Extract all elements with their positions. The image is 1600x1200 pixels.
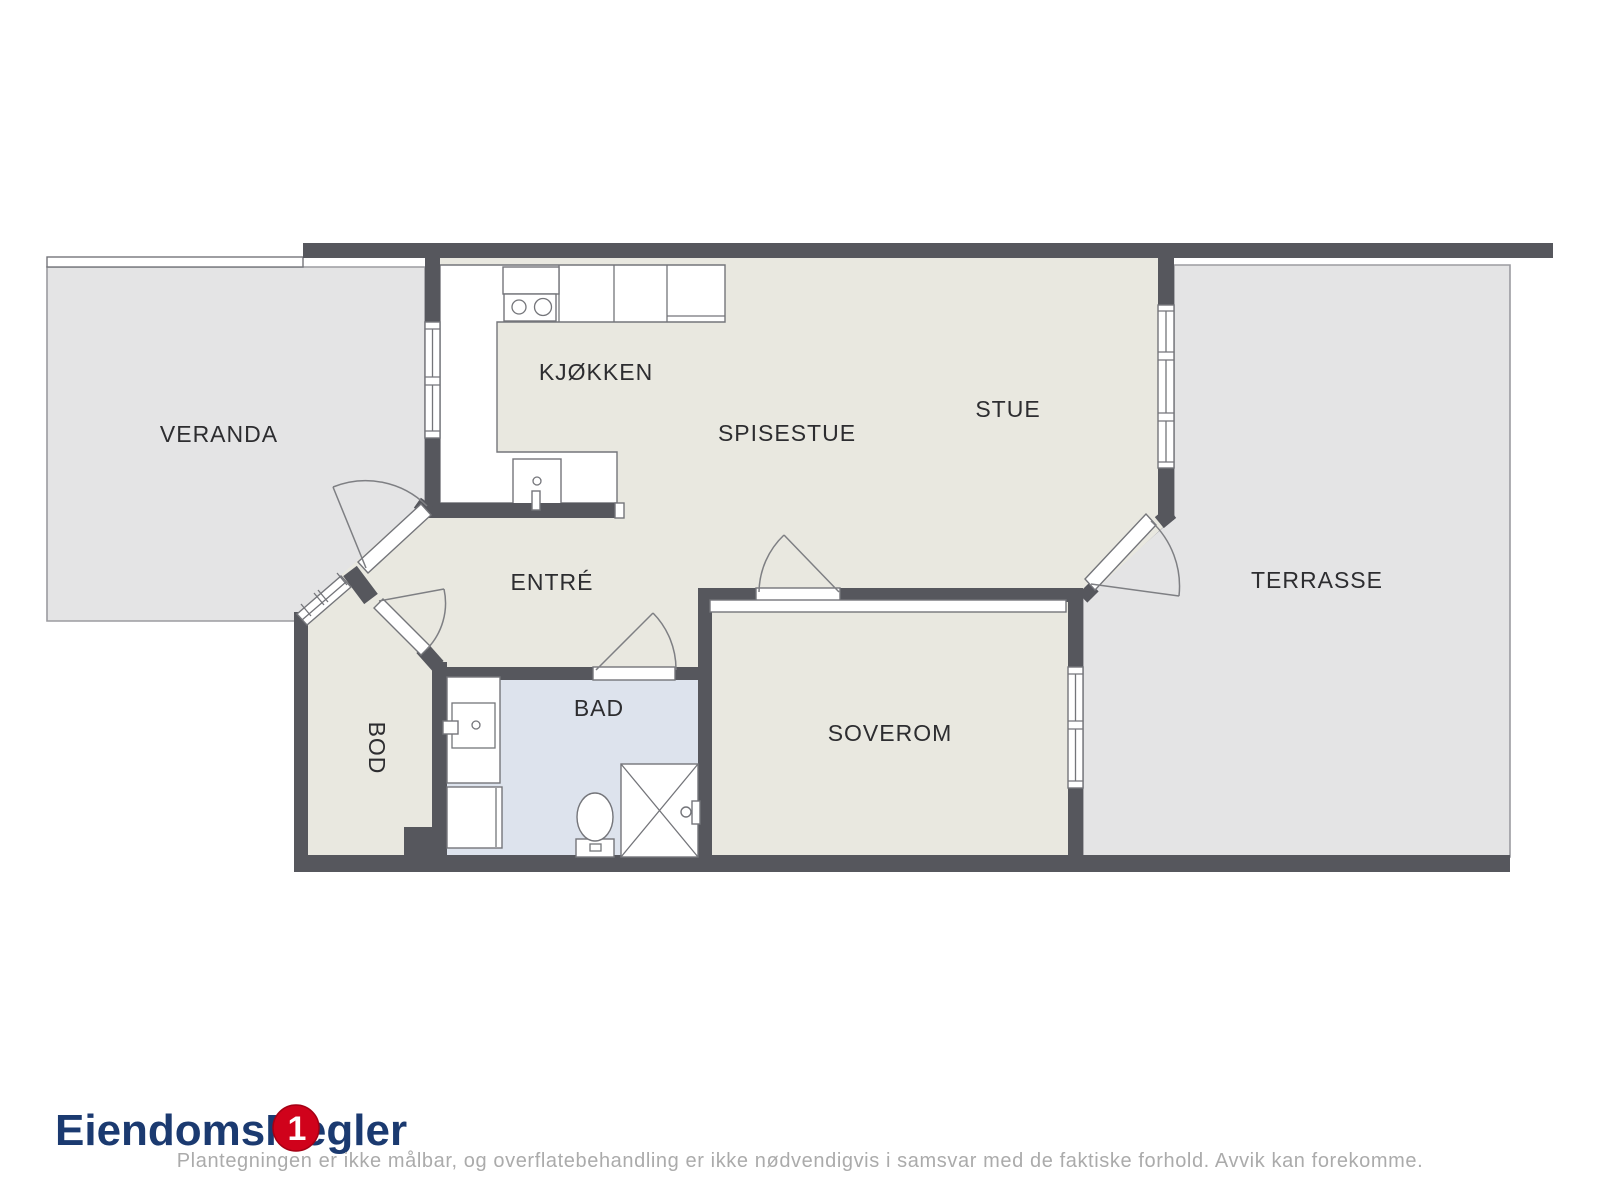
room-label-terrasse: TERRASSE — [1251, 567, 1383, 593]
wall-kitchen-left-lower — [425, 438, 440, 505]
wall-bottom — [294, 855, 1510, 872]
wall-bod-bad-divider — [432, 662, 447, 858]
soverom-wardrobe-strip — [710, 600, 1066, 612]
bathroom-sink-icon — [443, 677, 500, 783]
room-label-entre: ENTRÉ — [511, 569, 594, 595]
wall-bod-notch — [404, 827, 434, 857]
kitchen-window — [425, 322, 440, 438]
logo-wordmark: EiendomsMegler — [55, 1106, 407, 1155]
soverom-window — [1068, 667, 1083, 788]
wall-kitchen-left-upper — [425, 243, 440, 323]
veranda-railing — [47, 257, 303, 267]
room-label-bod: BOD — [364, 722, 390, 775]
washing-machine-icon — [447, 787, 502, 848]
shower-icon — [621, 764, 700, 857]
toilet-icon — [576, 793, 614, 857]
branding: EiendomsMegler 1 Plantegningen er ikke m… — [55, 1105, 1423, 1172]
floor-plan-drawing: VERANDA KJØKKEN SPISESTUE STUE TERRASSE … — [0, 0, 1600, 1200]
logo-badge-icon: 1 — [273, 1105, 319, 1151]
wall-soverom-right-upper — [1068, 588, 1083, 668]
wall-soverom-right-lower — [1068, 788, 1083, 857]
wall-stub-terrasse-bottom — [1084, 588, 1093, 597]
wall-kitchen-bottom — [425, 503, 617, 518]
room-label-veranda: VERANDA — [160, 421, 278, 447]
wall-bod-left — [294, 612, 308, 859]
stue-window — [1158, 305, 1174, 468]
room-label-stue: STUE — [975, 396, 1040, 422]
wall-stue-right-upper — [1158, 243, 1174, 306]
room-label-bad: BAD — [574, 695, 624, 721]
room-label-soverom: SOVEROM — [828, 720, 953, 746]
kitchen-faucet-icon — [532, 491, 540, 510]
room-label-spisestue: SPISESTUE — [718, 420, 856, 446]
kitchen-wall-endcap — [615, 503, 624, 518]
room-label-kjokken: KJØKKEN — [539, 359, 653, 385]
wall-stub-terrasse-top — [1161, 512, 1170, 523]
wall-top — [303, 243, 1553, 258]
logo-badge-number: 1 — [288, 1110, 307, 1148]
disclaimer-text: Plantegningen er ikke målbar, og overfla… — [177, 1150, 1424, 1172]
floor-plan-page: VERANDA KJØKKEN SPISESTUE STUE TERRASSE … — [0, 0, 1600, 1200]
stove-icon — [503, 267, 559, 321]
